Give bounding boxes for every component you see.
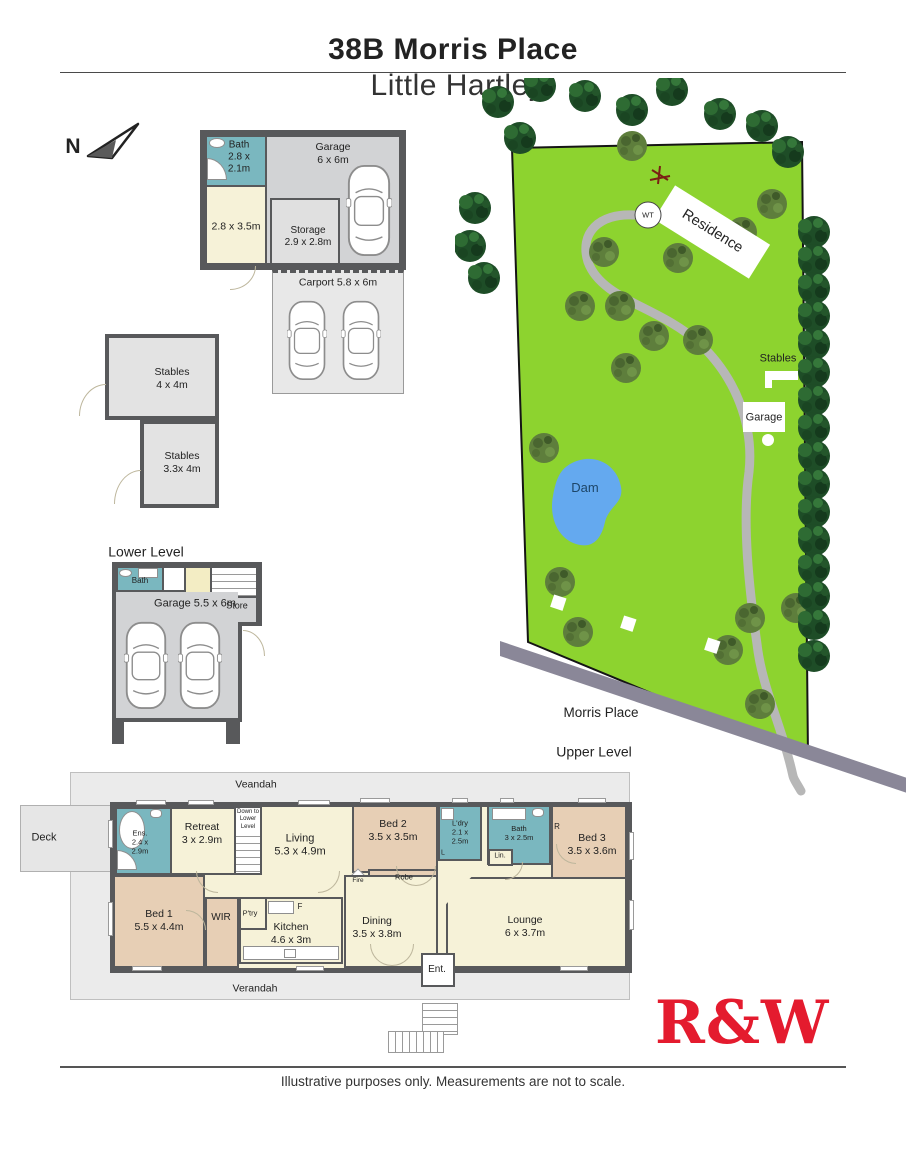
- bed2-room: [352, 805, 438, 873]
- outbuilding-storage-room: [270, 198, 340, 265]
- window: [360, 798, 390, 803]
- window: [560, 966, 588, 971]
- entry-steps: [388, 1031, 444, 1053]
- window: [108, 820, 113, 848]
- upper-stairs: [234, 807, 262, 875]
- toilet-icon: [150, 809, 162, 818]
- north-arrow-icon: [82, 118, 142, 166]
- tank-small-footprint: [762, 434, 774, 446]
- bathtub-icon: [492, 808, 526, 820]
- garage-footprint: [743, 402, 785, 432]
- toilet-icon: [532, 808, 544, 817]
- window: [132, 966, 162, 971]
- wir-room: [205, 897, 239, 968]
- vanity-icon: [138, 568, 158, 578]
- washer-icon: [441, 808, 454, 820]
- lower-post: [226, 720, 240, 744]
- page-title-address: 38B Morris Place: [328, 33, 578, 66]
- door-arc: [243, 630, 265, 656]
- window: [136, 800, 166, 805]
- window: [108, 902, 113, 936]
- flyer-page: 38B Morris Place Little Hartley N Bath 2…: [0, 0, 906, 1150]
- lounge-room: [446, 877, 627, 968]
- outbuilding-room: [205, 185, 267, 265]
- window: [500, 798, 514, 803]
- site-plan: [455, 78, 906, 803]
- window: [629, 900, 634, 930]
- car-icon: [287, 294, 327, 386]
- car-icon: [178, 614, 222, 716]
- pantry-room: [239, 897, 267, 930]
- door-arc: [114, 470, 141, 504]
- entry-nook: [421, 953, 455, 987]
- north-label: N: [65, 134, 80, 160]
- bathtub-icon: [119, 811, 145, 849]
- car-icon: [124, 614, 168, 716]
- lower-shower-room: [162, 566, 186, 592]
- door-arc: [79, 384, 106, 416]
- deck-area: [20, 805, 112, 872]
- toilet-icon: [209, 138, 225, 148]
- agency-logo: R&W: [655, 988, 829, 1058]
- header-rule: [60, 72, 846, 73]
- sink-icon: [284, 949, 296, 958]
- window: [188, 800, 214, 805]
- disclaimer-text: Illustrative purposes only. Measurements…: [281, 1074, 625, 1090]
- fridge-icon: [268, 901, 294, 914]
- page-title-suburb: [362, 69, 371, 102]
- trees-left: [455, 192, 500, 294]
- car-icon: [341, 294, 381, 386]
- window: [296, 966, 324, 971]
- stable-bottom: [140, 420, 219, 508]
- stable-top: [105, 334, 219, 420]
- tree-row-right-boundary: [798, 216, 830, 672]
- lower-level-heading: Lower Level: [108, 543, 184, 560]
- window: [298, 800, 330, 805]
- retreat-room: [170, 807, 236, 875]
- footer-rule: [60, 1066, 846, 1068]
- lower-post: [112, 720, 124, 744]
- door-arc: [230, 266, 256, 290]
- lower-landing: [184, 566, 212, 594]
- window: [578, 798, 606, 803]
- window: [629, 832, 634, 860]
- car-icon: [346, 158, 392, 262]
- water-tank-footprint: [635, 202, 661, 228]
- window: [452, 798, 468, 803]
- toilet-icon: [119, 569, 132, 577]
